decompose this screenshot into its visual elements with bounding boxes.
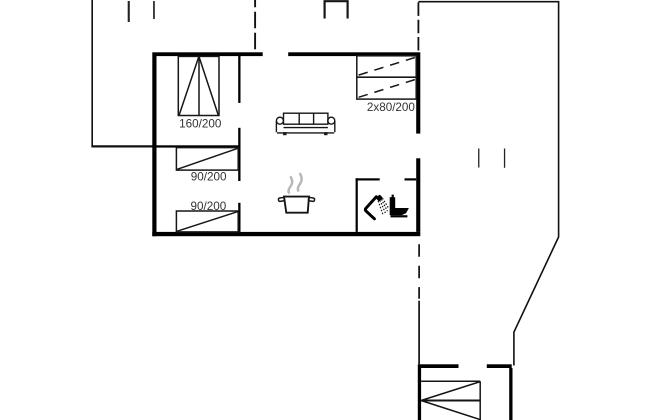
svg-text:90/200: 90/200 [191,170,227,183]
svg-text:160/200: 160/200 [179,117,222,130]
svg-text:2x80/200: 2x80/200 [367,101,416,114]
